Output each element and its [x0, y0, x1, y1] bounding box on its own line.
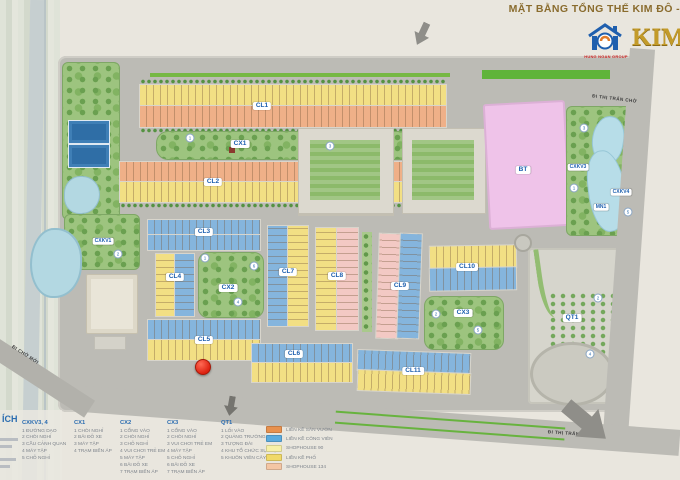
- median-trees: [362, 232, 372, 332]
- block-cl1-row-salmon: [140, 106, 446, 127]
- swatch-label: SHOPHOUSE 134: [286, 465, 326, 470]
- legend-item: 5 CHỖ NGHỈ: [167, 456, 212, 463]
- swatch-label: SHOPHOUSE 90: [286, 446, 323, 451]
- legend-item: 6 BÃI ĐỖ XE: [120, 463, 165, 470]
- label-cxkv3: CXKV3: [568, 164, 589, 171]
- label-cl5: CL5: [195, 336, 213, 344]
- label-cl6: CL6: [285, 350, 303, 358]
- direction-arrow-north: [410, 20, 435, 49]
- legend-col-header: CX2: [120, 420, 165, 426]
- label-cxkv4: CXKV4: [611, 189, 632, 196]
- block-cl7-col-yellow: [288, 226, 308, 326]
- label-cl3: CL3: [195, 228, 213, 236]
- legend-item: 7 TRẠM BIẾN ÁP: [167, 470, 212, 477]
- label-cl11: CL11: [402, 367, 424, 375]
- block-cl6-row-yellow: [252, 363, 352, 382]
- tree-strip: [140, 79, 446, 84]
- legend-item: 4 TRẠM BIẾN ÁP: [74, 449, 112, 456]
- legend-swatch-row: LIỀN KỀ SÂN VƯỜN: [266, 426, 333, 435]
- label-cx2: CX2: [219, 284, 238, 292]
- page-title: MẶT BẰNG TỔNG THỂ KIM ĐÔ -: [509, 3, 680, 15]
- label-cl8: CL8: [328, 272, 346, 280]
- block-cl2-row-yellow: [120, 182, 446, 202]
- swatch-color: [266, 454, 282, 461]
- map-marker: 2: [594, 294, 603, 303]
- swatch-color: [266, 445, 282, 452]
- field-west-green: [310, 140, 380, 200]
- legend-cut-item: [0, 438, 18, 441]
- north-road-median: [150, 73, 450, 77]
- tree-strip: [120, 203, 446, 208]
- legend-item: 5 CHỖ NGHỈ: [22, 456, 66, 463]
- swatch-color: [266, 426, 282, 433]
- map-marker: 4: [586, 350, 595, 359]
- tennis-court: [68, 144, 110, 168]
- map-marker: 2: [432, 310, 441, 319]
- label-cx3: CX3: [454, 309, 473, 317]
- cx3-park: [424, 296, 504, 350]
- legend-col-cx3: CX3 1 CỔNG VÀO 2 CHÒI NGHỈ 3 VUI CHƠI TR…: [167, 420, 212, 477]
- logo: HUNG NGAN GROUP KIM: [583, 22, 680, 62]
- map-marker: 1: [570, 184, 579, 193]
- logo-group-name: HUNG NGAN GROUP: [583, 54, 629, 59]
- swatch-label: LIỀN KỀ CÔNG VIÊN: [286, 437, 333, 442]
- legend-swatch-row: SHOPHOUSE 90: [266, 444, 333, 453]
- map-marker: 5: [474, 326, 483, 335]
- sports-field-plot: [298, 214, 394, 216]
- legend-col-header: CXKV3, 4: [22, 420, 66, 426]
- tennis-court: [68, 120, 110, 144]
- field-east-green: [412, 140, 474, 200]
- legend-swatch-row: LIỀN KỀ CÔNG VIÊN: [266, 435, 333, 444]
- map-marker: 6: [250, 262, 259, 271]
- legend-col-header: CX1: [74, 420, 112, 426]
- west-lake: [30, 228, 82, 298]
- swatch-label: LIỀN KỀ SÂN VƯỜN: [286, 428, 332, 433]
- masterplan-canvas: CL1 CX1 CL2 BT CXKV3 CXKV4 MN1 CL3 CL4 C…: [0, 0, 680, 480]
- legend-cut-item: [0, 445, 12, 448]
- legend-item: 5 MÁY TẬP: [120, 456, 165, 463]
- block-bt: [483, 100, 571, 230]
- label-cl4: CL4: [166, 273, 184, 281]
- label-cl9: CL9: [391, 282, 409, 290]
- block-cl1-row-yellow: [140, 85, 446, 106]
- swatch-label: LIỀN KỀ PHỐ: [286, 456, 316, 461]
- label-cl10: CL10: [456, 263, 478, 271]
- legend-swatch-row: SHOPHOUSE 134: [266, 463, 333, 472]
- roundabout: [514, 234, 532, 252]
- south-road-median: [336, 411, 566, 430]
- map-marker: 3: [580, 124, 589, 133]
- map-marker: 2: [114, 250, 123, 259]
- label-cl7: CL7: [279, 268, 297, 276]
- house-logo-icon: [583, 22, 627, 54]
- legend-swatches: LIỀN KỀ SÂN VƯỜN LIỀN KỀ CÔNG VIÊN SHOPH…: [266, 426, 333, 472]
- swatch-color: [266, 463, 282, 470]
- legend-cut-item: [0, 458, 16, 461]
- block-cl7-col-blue: [268, 226, 288, 326]
- swatch-color: [266, 435, 282, 442]
- legend-item: 7 TRẠM BIẾN ÁP: [120, 470, 165, 477]
- block-cl3-row2: [148, 235, 260, 250]
- legend-cut-item: [0, 465, 10, 468]
- block-cl4-col-blue: [175, 254, 194, 316]
- label-cl2: CL2: [204, 178, 222, 186]
- label-qt1: QT1: [563, 314, 582, 322]
- legend-swatch-row: LIỀN KỀ PHỐ: [266, 454, 333, 463]
- parking-lot: [94, 336, 126, 350]
- map-marker: 1: [186, 134, 195, 143]
- legend-col-header: CX3: [167, 420, 212, 426]
- legend-col-cx1: CX1 1 CHÒI NGHỈ 2 BÃI ĐỖ XE 3 MÁY TẬP 4 …: [74, 420, 112, 456]
- label-cl1: CL1: [253, 102, 271, 110]
- map-marker: 5: [624, 208, 633, 217]
- map-marker: 1: [201, 254, 210, 263]
- qt1-oval: [530, 342, 614, 406]
- map-marker: 3: [326, 142, 335, 151]
- block-cl4-col-yellow: [156, 254, 175, 316]
- label-bt: BT: [516, 166, 531, 174]
- block-cl2-row-salmon: [120, 162, 446, 182]
- map-marker: 4: [234, 298, 243, 307]
- legend-cut-header: ÍCH: [2, 414, 18, 424]
- label-mn1: MN1: [594, 204, 609, 211]
- logo-brand: KIM: [632, 24, 680, 52]
- community-building: [86, 274, 138, 334]
- label-cx1: CX1: [231, 140, 250, 148]
- label-cxkv1: CXKV1: [93, 238, 114, 245]
- legend-col-cxkv: CXKV3, 4 1 ĐƯỜNG DẠO 2 CHÒI NGHỈ 3 CẦU C…: [22, 420, 66, 463]
- legend-col-cx2: CX2 1 CỔNG VÀO 2 CHÒI NGHỈ 3 CHỖ NGHỈ 4 …: [120, 420, 165, 477]
- north-road-median-east: [482, 70, 610, 79]
- legend-item: 6 BÃI ĐỖ XE: [167, 463, 212, 470]
- location-marker: [195, 359, 211, 375]
